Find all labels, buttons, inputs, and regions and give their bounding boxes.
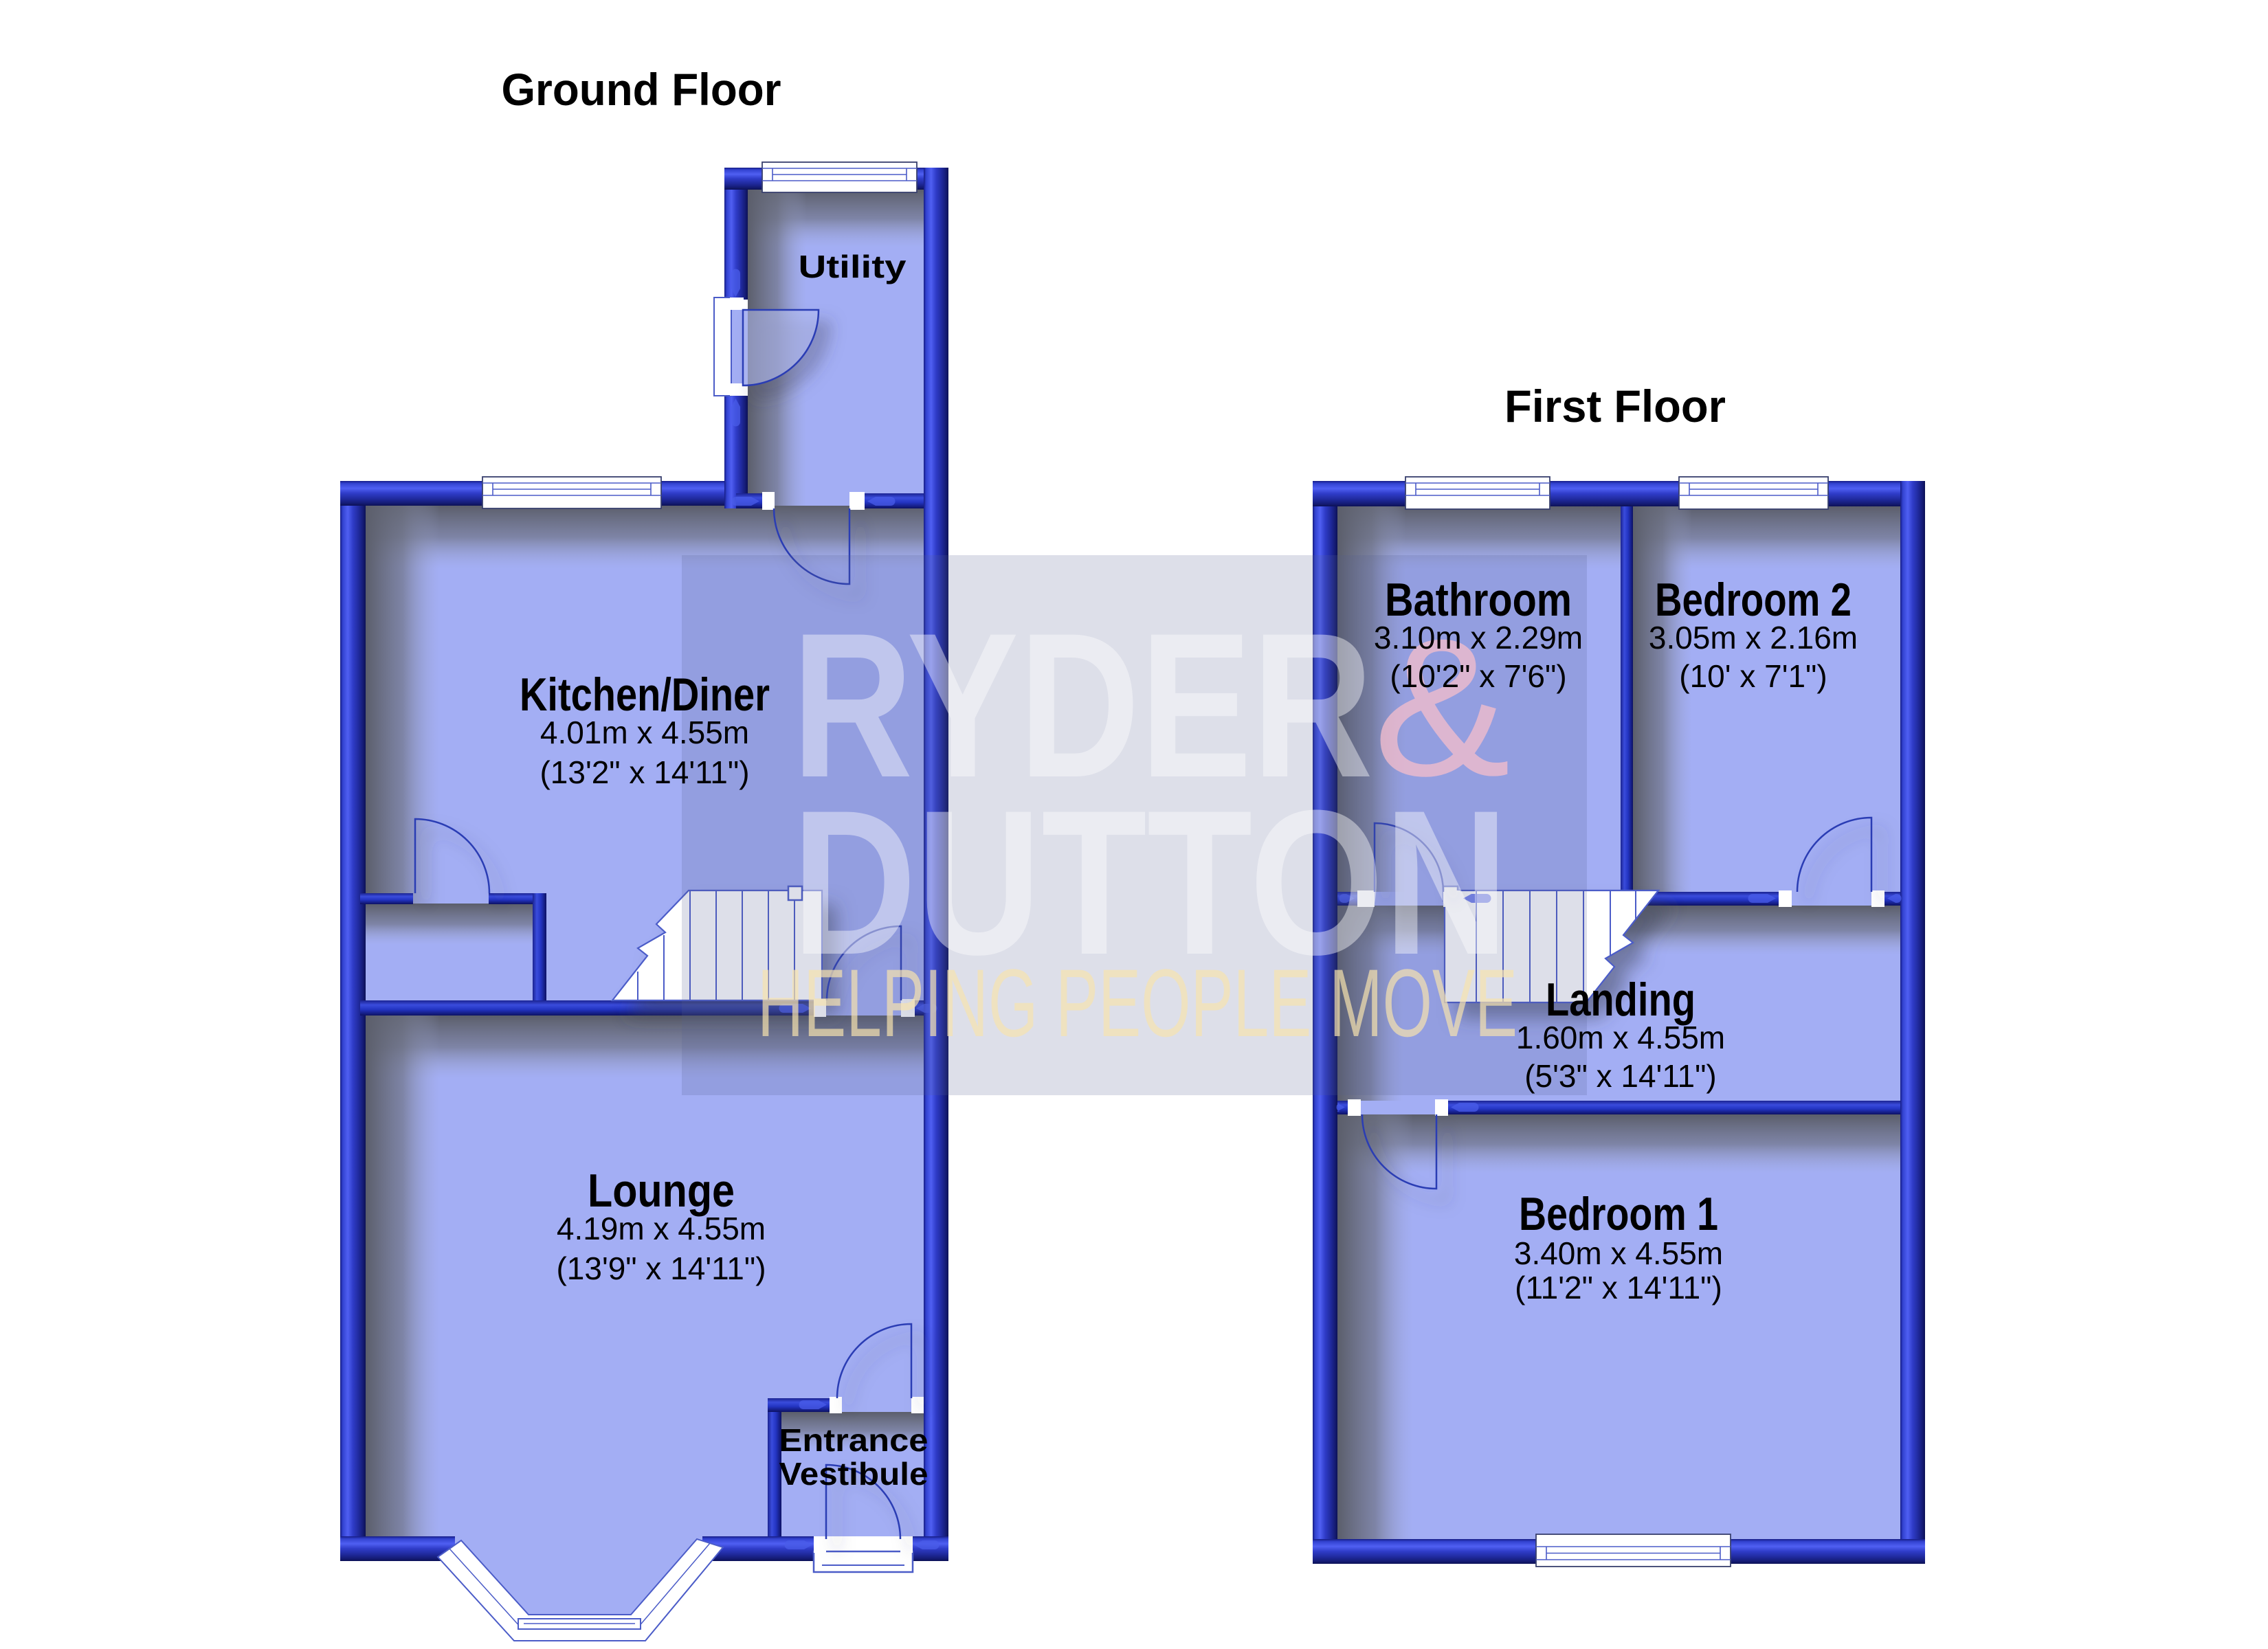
- svg-text:Bedroom 1: Bedroom 1: [1519, 1188, 1718, 1240]
- svg-text:Landing: Landing: [1546, 974, 1696, 1026]
- svg-text:Bedroom 2: Bedroom 2: [1655, 574, 1852, 626]
- svg-text:4.19m x 4.55m: 4.19m x 4.55m: [557, 1211, 766, 1246]
- svg-text:3.40m x 4.55m: 3.40m x 4.55m: [1514, 1235, 1723, 1271]
- svg-text:Bathroom: Bathroom: [1385, 574, 1572, 626]
- svg-text:3.05m x 2.16m: 3.05m x 2.16m: [1649, 620, 1858, 655]
- svg-text:1.60m x 4.55m: 1.60m x 4.55m: [1516, 1020, 1725, 1055]
- svg-text:(10' x 7'1"): (10' x 7'1"): [1679, 658, 1827, 694]
- svg-text:(10'2" x 7'6"): (10'2" x 7'6"): [1390, 658, 1566, 694]
- svg-text:(11'2" x 14'11"): (11'2" x 14'11"): [1515, 1270, 1722, 1305]
- svg-text:4.01m x 4.55m: 4.01m x 4.55m: [540, 715, 749, 750]
- svg-text:3.10m x 2.29m: 3.10m x 2.29m: [1374, 620, 1583, 655]
- svg-text:Kitchen/Diner: Kitchen/Diner: [520, 669, 770, 721]
- svg-text:Lounge: Lounge: [588, 1165, 735, 1217]
- svg-text:(13'9" x 14'11"): (13'9" x 14'11"): [556, 1250, 766, 1286]
- svg-text:(5'3" x 14'11"): (5'3" x 14'11"): [1524, 1058, 1717, 1094]
- svg-text:Utility: Utility: [799, 249, 907, 284]
- svg-text:First Floor: First Floor: [1504, 381, 1726, 431]
- svg-text:Entrance: Entrance: [779, 1422, 929, 1458]
- svg-text:Ground Floor: Ground Floor: [502, 64, 781, 115]
- svg-text:(13'2" x 14'11"): (13'2" x 14'11"): [540, 754, 749, 790]
- svg-text:Vestibule: Vestibule: [779, 1456, 929, 1492]
- svg-text:HELPING PEOPLE MOVE: HELPING PEOPLE MOVE: [757, 949, 1517, 1057]
